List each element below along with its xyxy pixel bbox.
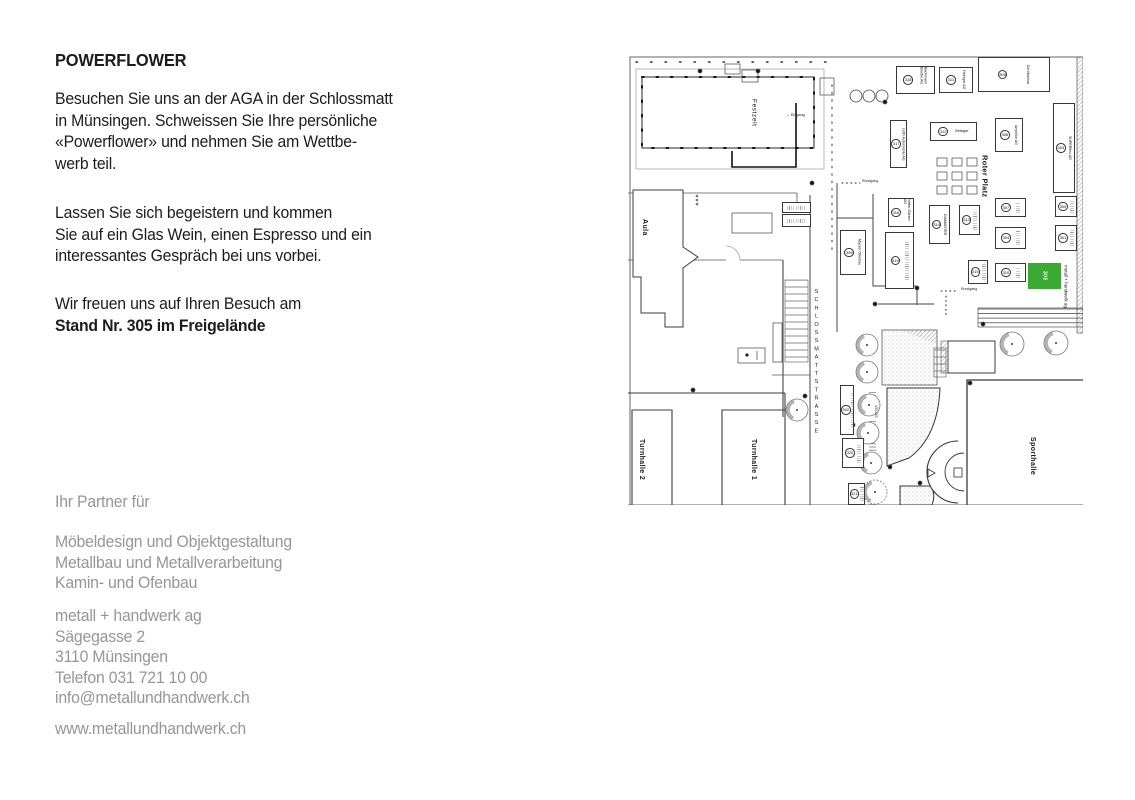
page-title: POWERFLOWER bbox=[55, 50, 186, 71]
turnhalle1-label: Turnhalle 1 bbox=[750, 439, 757, 480]
service-item: Möbeldesign und Objektgestaltung bbox=[55, 532, 292, 553]
stand-box: 314 DIAMANTER bbox=[929, 205, 950, 244]
stand-label: Lüthi Automobile AG bbox=[901, 128, 905, 161]
stand-number-badge: 315 bbox=[971, 267, 981, 277]
stairs bbox=[785, 280, 808, 362]
aula-building bbox=[633, 190, 698, 327]
stand-box bbox=[782, 214, 811, 227]
stand-box: 316 Vetter-Garten AG bbox=[888, 198, 914, 227]
stand-305-number: 305 bbox=[1042, 271, 1048, 281]
outbuilding bbox=[941, 341, 995, 373]
service-item: Metallbau und Metallverarbeitung bbox=[55, 553, 292, 574]
stand-number-badge: 319 bbox=[891, 256, 901, 266]
turnhalle2-label: Turnhalle 2 bbox=[638, 439, 645, 480]
phone: Telefon 031 721 10 00 bbox=[55, 668, 250, 689]
intro-paragraph: Besuchen Sie uns an der AGA in der Schlo… bbox=[55, 88, 393, 174]
invite-line: interessantes Gespräch bei uns vorbei. bbox=[55, 245, 372, 267]
stand-number-badge: 321 bbox=[850, 489, 860, 499]
stand-number-badge: 318 bbox=[903, 75, 913, 85]
street-label: SCHLOSSMATTSTRASSE bbox=[813, 289, 819, 437]
stand-label bbox=[973, 210, 977, 230]
address-city: 3110 Münsingen bbox=[55, 647, 250, 668]
stand-305-company-label: metall + handwerk ag bbox=[1063, 265, 1068, 308]
stand-box: 306 Amplifon AG bbox=[995, 118, 1023, 152]
company-name: metall + handwerk ag bbox=[55, 606, 250, 627]
stand-number-badge: 310 bbox=[1001, 268, 1011, 278]
stand-label bbox=[857, 443, 861, 463]
stand-box: 318 Bachmann Elektro AG bbox=[896, 66, 935, 94]
partner-intro: Ihr Partner für bbox=[55, 491, 149, 513]
rundgang-label: Rundgang bbox=[961, 288, 977, 292]
stand-box: 310 bbox=[995, 263, 1026, 282]
round-tables bbox=[850, 90, 888, 102]
company-address: metall + handwerk ag Sägegasse 2 3110 Mü… bbox=[55, 606, 250, 709]
stand-label: DIAMANTER bbox=[943, 214, 947, 235]
stand-box: 309 Maurer Ofenbau bbox=[840, 230, 866, 275]
invite-line: Sie auf ein Glas Wein, einen Espresso un… bbox=[55, 224, 372, 246]
stand-box: 307 bbox=[995, 198, 1026, 217]
intro-line: Besuchen Sie uns an der AGA in der Schlo… bbox=[55, 88, 393, 110]
stand-label bbox=[851, 393, 854, 427]
intro-line: «Powerflower» und nehmen Sie am Wettbe- bbox=[55, 131, 393, 153]
stand-number-badge: 313 bbox=[962, 215, 972, 225]
stand-number-badge: 317 bbox=[891, 139, 901, 149]
stand-box: 304 bbox=[995, 227, 1026, 249]
stand-label bbox=[905, 241, 909, 280]
stand-label bbox=[1016, 267, 1020, 279]
stand-box: 311 Heiniger AG bbox=[939, 67, 973, 93]
stand-box: 317 Lüthi Automobile AG bbox=[890, 120, 907, 168]
turnhalle-buildings bbox=[628, 393, 785, 505]
small-stand-grid bbox=[937, 158, 977, 194]
stand-box: 308 Die Mobiliar bbox=[978, 57, 1050, 92]
stand-number-badge: 302 bbox=[841, 405, 851, 415]
fence bbox=[1077, 57, 1083, 333]
stand-number-badge: 300 bbox=[1058, 202, 1068, 212]
stand-number-line: Stand Nr. 305 im Freigelände bbox=[55, 315, 301, 337]
stand-number-badge: 306 bbox=[1000, 130, 1010, 140]
stand-label bbox=[860, 487, 864, 501]
stand-label bbox=[787, 219, 806, 223]
stand-box: 315 bbox=[968, 260, 988, 284]
stand-box: 303 SUPERflex AG bbox=[1053, 103, 1075, 193]
stand-box: 301 bbox=[1055, 225, 1077, 251]
aula-label: Aula bbox=[641, 219, 648, 236]
info-point bbox=[738, 348, 765, 363]
stand-label: Die Mobiliar bbox=[1026, 65, 1030, 84]
stand-box bbox=[782, 202, 811, 213]
gravel-upper bbox=[882, 330, 946, 385]
invite-line: Lassen Sie sich begeistern und kommen bbox=[55, 202, 372, 224]
stand-number-badge: 301 bbox=[1058, 233, 1068, 243]
site-plan: Festzelt Aula Turnhalle 2 Turnhalle 1 Sp… bbox=[628, 55, 1083, 505]
stand-305-highlight: 305 bbox=[1028, 263, 1061, 289]
stand-number-badge: 314 bbox=[932, 220, 942, 230]
stand-number-badge: 320 bbox=[845, 448, 855, 458]
stand-box: 300 bbox=[1055, 196, 1077, 217]
visit-line: Wir freuen uns auf Ihren Besuch am bbox=[55, 293, 301, 315]
stand-box: 313 bbox=[959, 205, 980, 235]
stand-label bbox=[1016, 231, 1020, 245]
stand-box: 319 bbox=[885, 232, 914, 289]
festzelt-label: Festzelt bbox=[750, 99, 757, 127]
sporthalle-label: Sporthalle bbox=[1029, 437, 1036, 475]
address-street: Sägegasse 2 bbox=[55, 627, 250, 648]
stand-number-badge: 312 bbox=[938, 127, 948, 137]
stand-box: 320 bbox=[842, 438, 864, 468]
stand-number-badge: 309 bbox=[844, 248, 854, 258]
stand-box: 302 bbox=[840, 385, 854, 435]
sporthalle-building bbox=[967, 380, 1083, 505]
stand-number-badge: 303 bbox=[1056, 143, 1066, 153]
email: info@metallundhandwerk.ch bbox=[55, 688, 250, 709]
stand-label: Vetter-Garten AG bbox=[903, 199, 911, 226]
roter-platz-label: Roter Platz bbox=[981, 155, 989, 197]
stand-label: Heiniger AG bbox=[962, 70, 966, 89]
invite-paragraph: Lassen Sie sich begeistern und kommen Si… bbox=[55, 202, 372, 267]
stand-label: Maurer Ofenbau bbox=[857, 239, 861, 265]
stand-label bbox=[1016, 202, 1020, 214]
stand-label bbox=[1070, 200, 1074, 213]
stand-number-badge: 308 bbox=[998, 70, 1008, 80]
eingang-label: ← Eingang bbox=[786, 114, 805, 118]
stand-box: 321 bbox=[848, 483, 865, 505]
stand-number-badge: 316 bbox=[891, 208, 901, 218]
stand-label: Bachmann Elektro AG bbox=[919, 67, 927, 93]
stand-label: SUPERflex AG bbox=[1068, 136, 1072, 160]
velos-label: VELOS bbox=[873, 405, 877, 418]
service-item: Kamin- und Ofenbau bbox=[55, 573, 292, 594]
intro-line: in Münsingen. Schweissen Sie Ihre persön… bbox=[55, 110, 393, 132]
stand-box: 312 Betsiger bbox=[930, 122, 977, 141]
services-list: Möbeldesign und Objektgestaltung Metallb… bbox=[55, 532, 292, 594]
stand-label bbox=[982, 264, 986, 279]
stand-number-badge: 307 bbox=[1001, 203, 1011, 213]
intro-line: werb teil. bbox=[55, 153, 393, 175]
stand-number-badge: 304 bbox=[1001, 233, 1011, 243]
visit-paragraph: Wir freuen uns auf Ihren Besuch am Stand… bbox=[55, 293, 301, 336]
stand-label bbox=[1070, 230, 1074, 247]
stand-label: Amplifon AG bbox=[1014, 125, 1018, 145]
bleachers bbox=[978, 308, 1083, 327]
website: www.metallundhandwerk.ch bbox=[55, 718, 246, 740]
stand-number-badge: 311 bbox=[946, 75, 956, 85]
stand-label: Betsiger bbox=[955, 129, 968, 133]
rundgang-label: Rundgang bbox=[862, 180, 878, 184]
stand-label bbox=[787, 206, 806, 210]
